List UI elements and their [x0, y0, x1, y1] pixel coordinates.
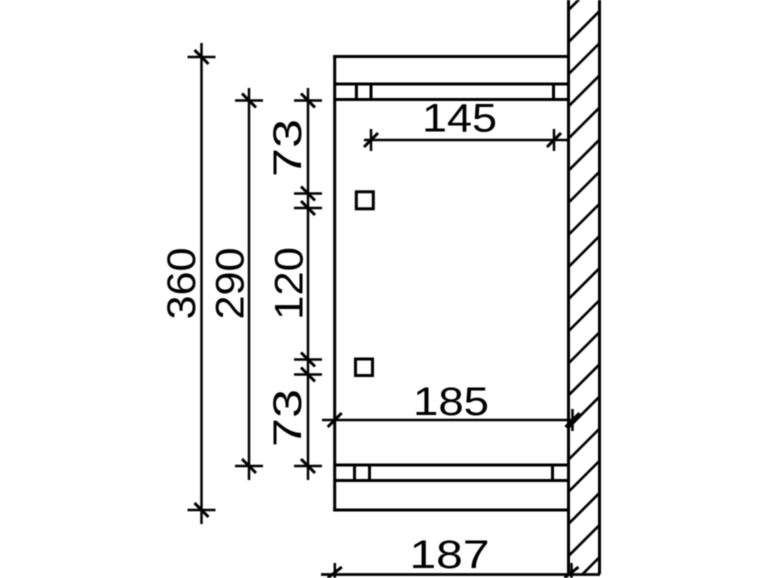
- svg-text:120: 120: [268, 247, 312, 320]
- svg-text:360: 360: [160, 248, 204, 320]
- svg-text:185: 185: [413, 380, 489, 424]
- svg-text:73: 73: [266, 119, 310, 177]
- svg-text:290: 290: [209, 248, 253, 320]
- svg-text:187: 187: [410, 533, 490, 577]
- svg-text:145: 145: [422, 97, 497, 141]
- svg-text:73: 73: [266, 389, 310, 447]
